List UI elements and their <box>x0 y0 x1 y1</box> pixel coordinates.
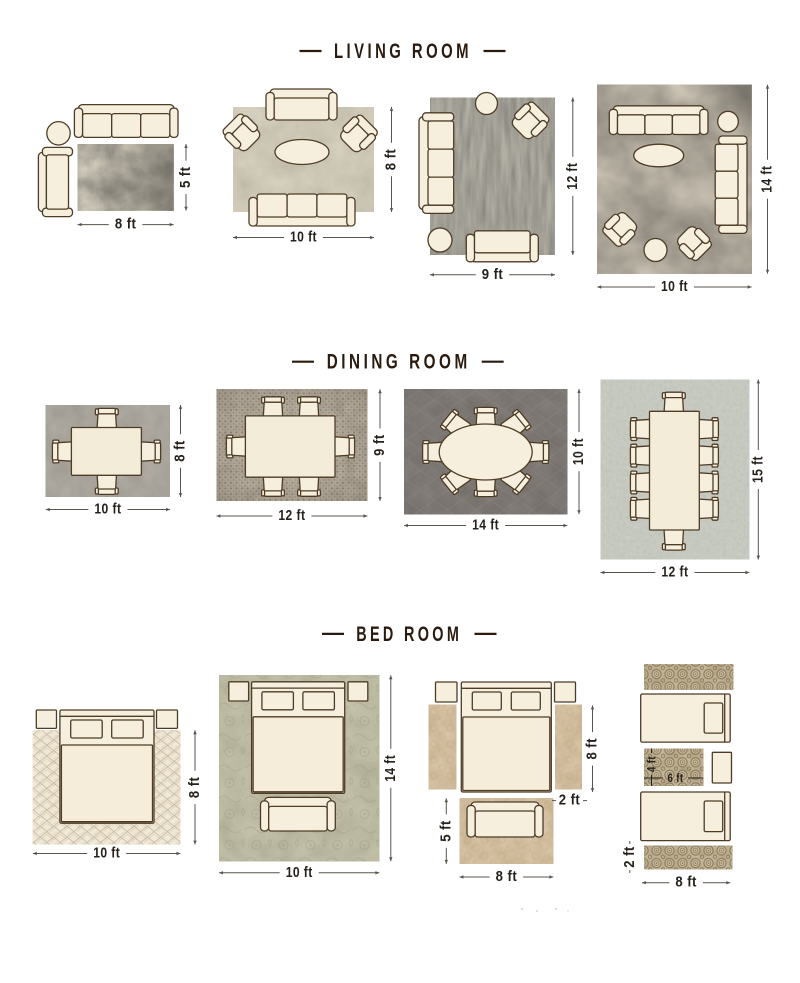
svg-text:12 ft: 12 ft <box>278 508 305 524</box>
svg-text:10 ft: 10 ft <box>94 502 121 518</box>
svg-text:2 ft: 2 ft <box>622 846 638 868</box>
svg-text:BED ROOM: BED ROOM <box>356 622 462 646</box>
svg-text:8 ft: 8 ft <box>585 738 601 760</box>
svg-text:8 ft: 8 ft <box>115 217 137 233</box>
svg-text:6 ft: 6 ft <box>668 771 684 785</box>
svg-text:10 ft: 10 ft <box>661 279 688 295</box>
svg-text:5 ft: 5 ft <box>438 820 454 842</box>
svg-text:LIVING ROOM: LIVING ROOM <box>334 39 472 63</box>
svg-text:4 ft: 4 ft <box>645 756 659 772</box>
svg-text:10 ft: 10 ft <box>93 846 120 862</box>
svg-text:2 ft: 2 ft <box>559 793 581 809</box>
svg-text:12 ft: 12 ft <box>565 163 581 190</box>
svg-text:DINING ROOM: DINING ROOM <box>327 350 471 374</box>
svg-text:8 ft: 8 ft <box>675 875 697 891</box>
svg-text:10 ft: 10 ft <box>290 230 317 246</box>
svg-text:8 ft: 8 ft <box>496 869 518 885</box>
svg-text:10 ft: 10 ft <box>286 865 313 881</box>
svg-text:8 ft: 8 ft <box>173 440 189 462</box>
svg-text:15 ft: 15 ft <box>750 456 766 483</box>
svg-text:5 ft: 5 ft <box>178 167 194 189</box>
svg-text:8 ft: 8 ft <box>384 149 400 171</box>
svg-text:8 ft: 8 ft <box>187 777 203 799</box>
svg-text:9 ft: 9 ft <box>482 267 504 283</box>
svg-text:10 ft: 10 ft <box>571 438 587 465</box>
svg-text:14 ft: 14 ft <box>383 755 399 782</box>
svg-text:14 ft: 14 ft <box>472 518 499 534</box>
svg-text:14 ft: 14 ft <box>760 166 776 193</box>
svg-text:9 ft: 9 ft <box>372 434 388 456</box>
svg-text:12 ft: 12 ft <box>661 565 688 581</box>
